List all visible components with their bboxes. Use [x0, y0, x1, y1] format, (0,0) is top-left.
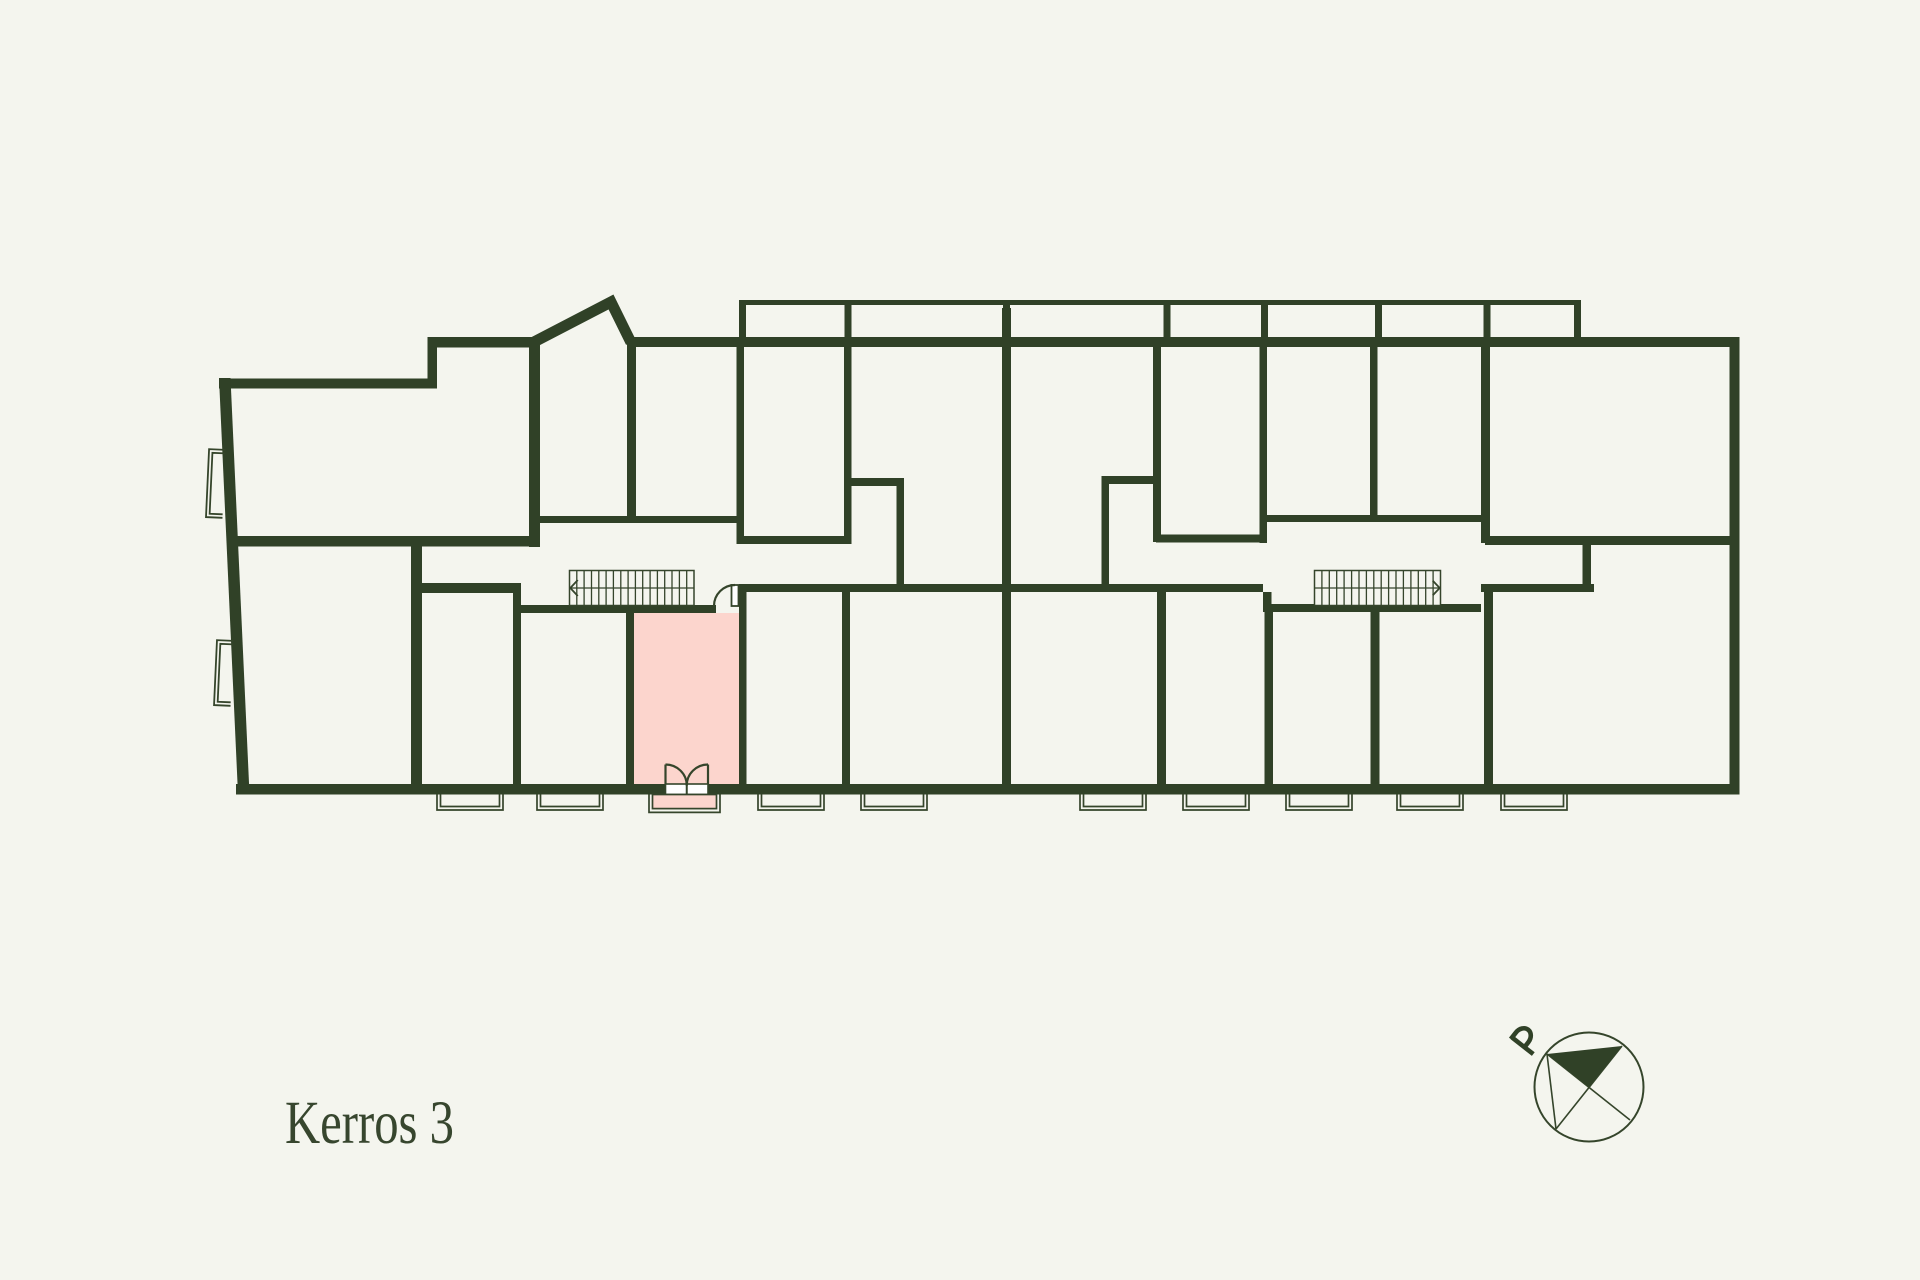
svg-text:Kerros 3: Kerros 3 — [285, 1090, 454, 1157]
